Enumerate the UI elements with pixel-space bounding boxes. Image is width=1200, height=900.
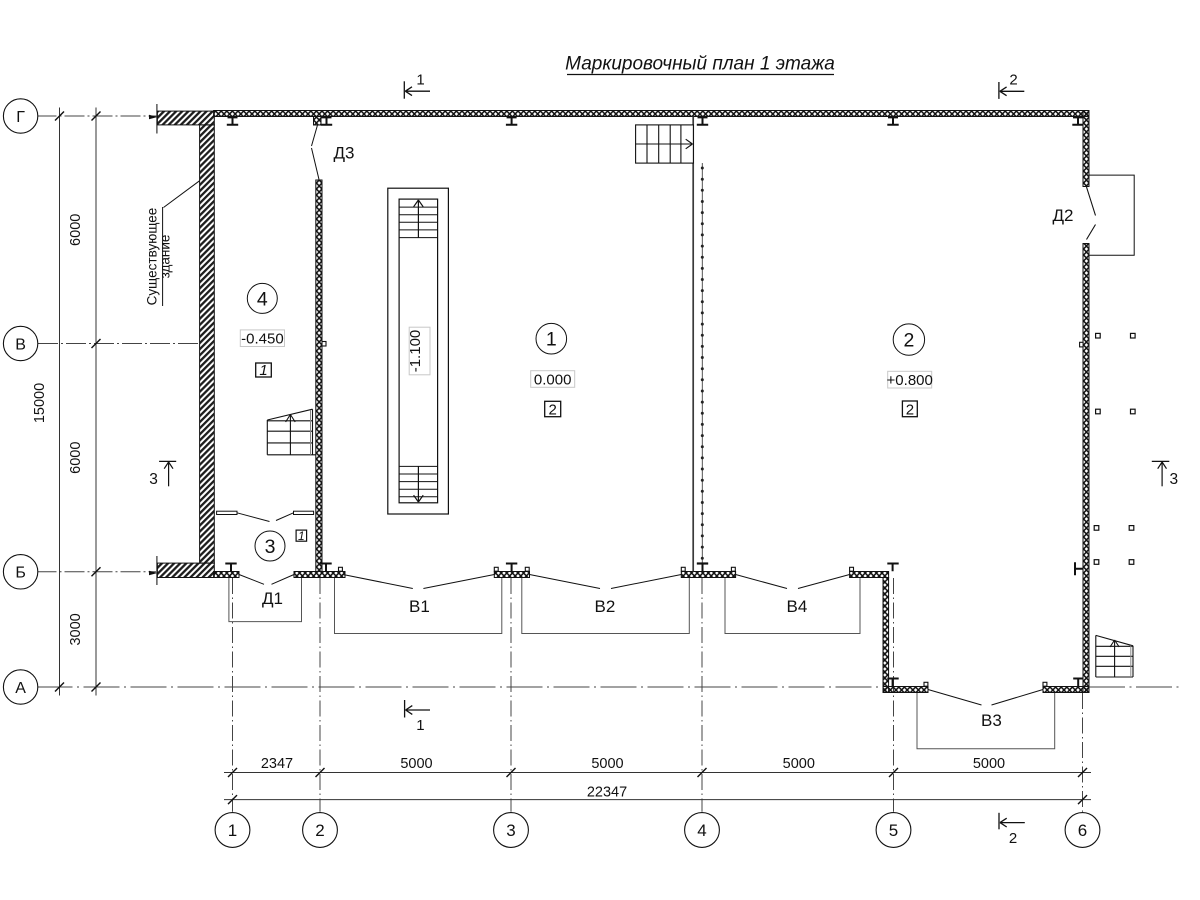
svg-text:5000: 5000 (783, 756, 815, 772)
svg-text:А: А (15, 680, 26, 697)
svg-text:5000: 5000 (400, 756, 432, 772)
svg-text:2: 2 (1009, 830, 1017, 847)
svg-text:2: 2 (906, 401, 914, 418)
svg-text:22347: 22347 (587, 785, 627, 801)
svg-text:5000: 5000 (591, 756, 623, 772)
svg-text:3: 3 (506, 821, 515, 840)
svg-text:6: 6 (1078, 821, 1087, 840)
svg-text:3: 3 (1169, 471, 1178, 488)
svg-text:Д1: Д1 (262, 589, 283, 608)
svg-text:1: 1 (416, 717, 424, 734)
svg-text:3: 3 (149, 471, 158, 488)
svg-text:3: 3 (265, 536, 276, 558)
svg-text:15000: 15000 (32, 383, 48, 423)
svg-text:-0.450: -0.450 (241, 331, 284, 348)
svg-text:5: 5 (889, 821, 898, 840)
svg-text:В2: В2 (595, 597, 616, 616)
svg-text:2: 2 (1009, 72, 1017, 89)
svg-text:2: 2 (315, 821, 324, 840)
svg-text:Д2: Д2 (1053, 206, 1074, 225)
svg-text:В3: В3 (981, 711, 1002, 730)
svg-text:Д3: Д3 (334, 144, 355, 163)
svg-text:В: В (15, 336, 26, 353)
svg-text:здание: здание (157, 235, 172, 279)
svg-text:3000: 3000 (68, 613, 84, 645)
svg-text:+0.800: +0.800 (887, 372, 933, 389)
svg-text:2347: 2347 (261, 756, 293, 772)
svg-text:1: 1 (546, 329, 557, 351)
svg-text:1: 1 (259, 362, 267, 379)
svg-text:4: 4 (257, 288, 268, 310)
svg-text:Маркировочный план 1 этажа: Маркировочный план 1 этажа (565, 54, 835, 75)
svg-text:-1.100: -1.100 (407, 330, 424, 373)
svg-text:В4: В4 (787, 597, 808, 616)
svg-text:В1: В1 (409, 597, 430, 616)
svg-text:6000: 6000 (68, 214, 84, 246)
svg-text:0.000: 0.000 (534, 371, 572, 388)
svg-text:2: 2 (549, 401, 557, 418)
svg-text:5000: 5000 (973, 756, 1005, 772)
svg-text:1: 1 (298, 529, 305, 543)
svg-text:Г: Г (16, 109, 25, 126)
svg-text:1: 1 (416, 72, 424, 89)
svg-text:Б: Б (15, 565, 26, 582)
svg-text:4: 4 (697, 821, 706, 840)
svg-text:6000: 6000 (68, 442, 84, 474)
svg-text:1: 1 (228, 821, 237, 840)
svg-text:2: 2 (903, 330, 914, 352)
